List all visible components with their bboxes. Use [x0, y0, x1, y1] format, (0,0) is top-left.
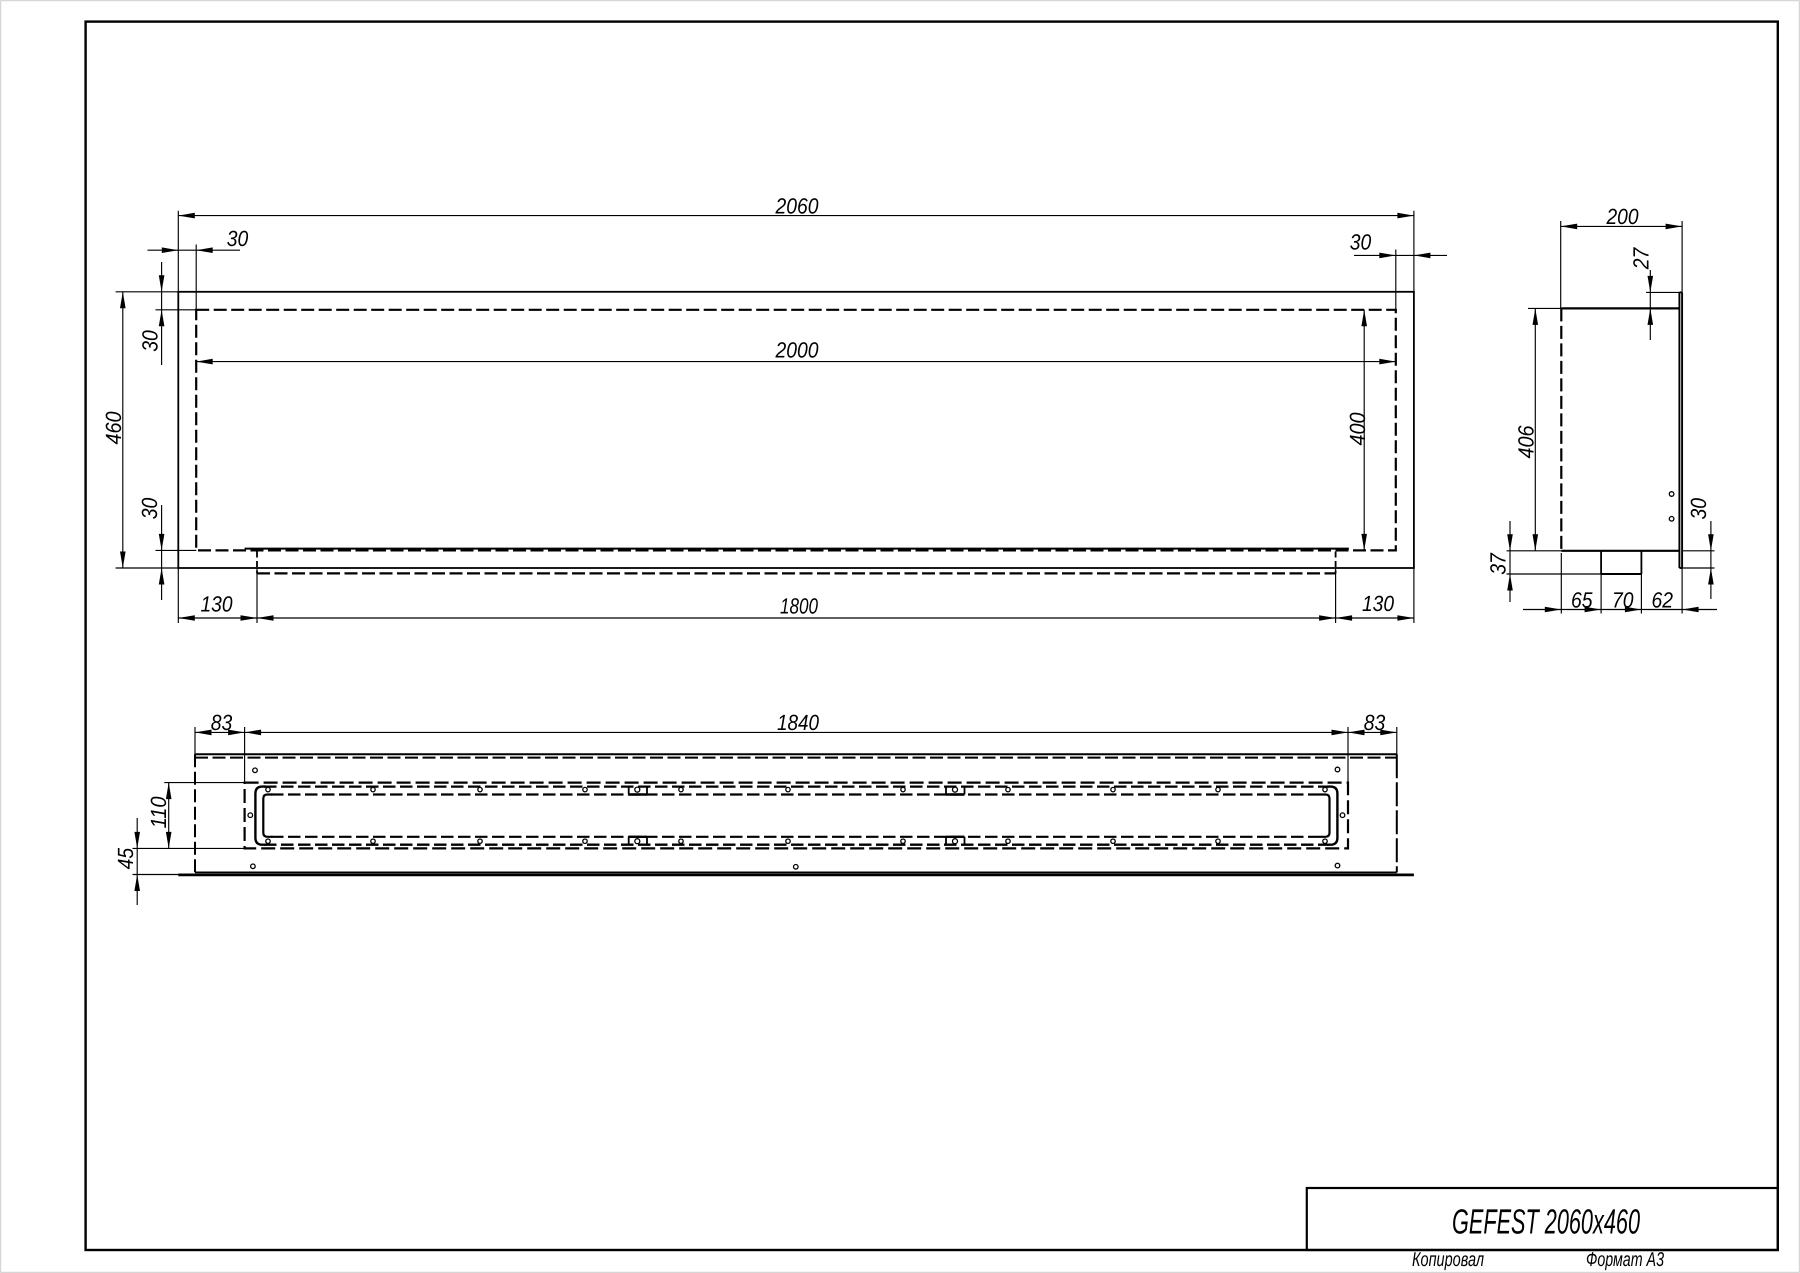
svg-text:1800: 1800 — [780, 594, 819, 619]
svg-text:2060: 2060 — [775, 194, 820, 219]
svg-text:130: 130 — [1362, 591, 1395, 616]
svg-text:83: 83 — [1364, 710, 1386, 735]
svg-text:200: 200 — [1606, 204, 1640, 229]
svg-text:83: 83 — [211, 710, 233, 735]
svg-text:30: 30 — [138, 330, 163, 352]
svg-text:130: 130 — [201, 592, 234, 617]
svg-text:Копировал: Копировал — [1412, 1249, 1484, 1271]
svg-text:2000: 2000 — [775, 338, 820, 363]
svg-text:30: 30 — [1686, 497, 1711, 519]
svg-text:110: 110 — [146, 796, 171, 829]
svg-text:30: 30 — [137, 497, 162, 519]
svg-text:30: 30 — [227, 226, 249, 251]
svg-text:62: 62 — [1652, 588, 1674, 613]
svg-text:400: 400 — [1345, 412, 1370, 446]
svg-text:Формат А3: Формат А3 — [1586, 1249, 1664, 1271]
svg-text:37: 37 — [1486, 553, 1511, 575]
svg-text:406: 406 — [1514, 425, 1539, 459]
svg-text:30: 30 — [1350, 230, 1372, 255]
svg-text:1840: 1840 — [777, 710, 820, 735]
svg-text:70: 70 — [1612, 588, 1634, 613]
svg-text:45: 45 — [113, 847, 138, 869]
svg-text:GEFEST 2060x460: GEFEST 2060x460 — [1452, 1203, 1640, 1242]
svg-text:460: 460 — [101, 411, 126, 445]
svg-text:27: 27 — [1629, 247, 1654, 270]
svg-text:65: 65 — [1571, 588, 1593, 613]
